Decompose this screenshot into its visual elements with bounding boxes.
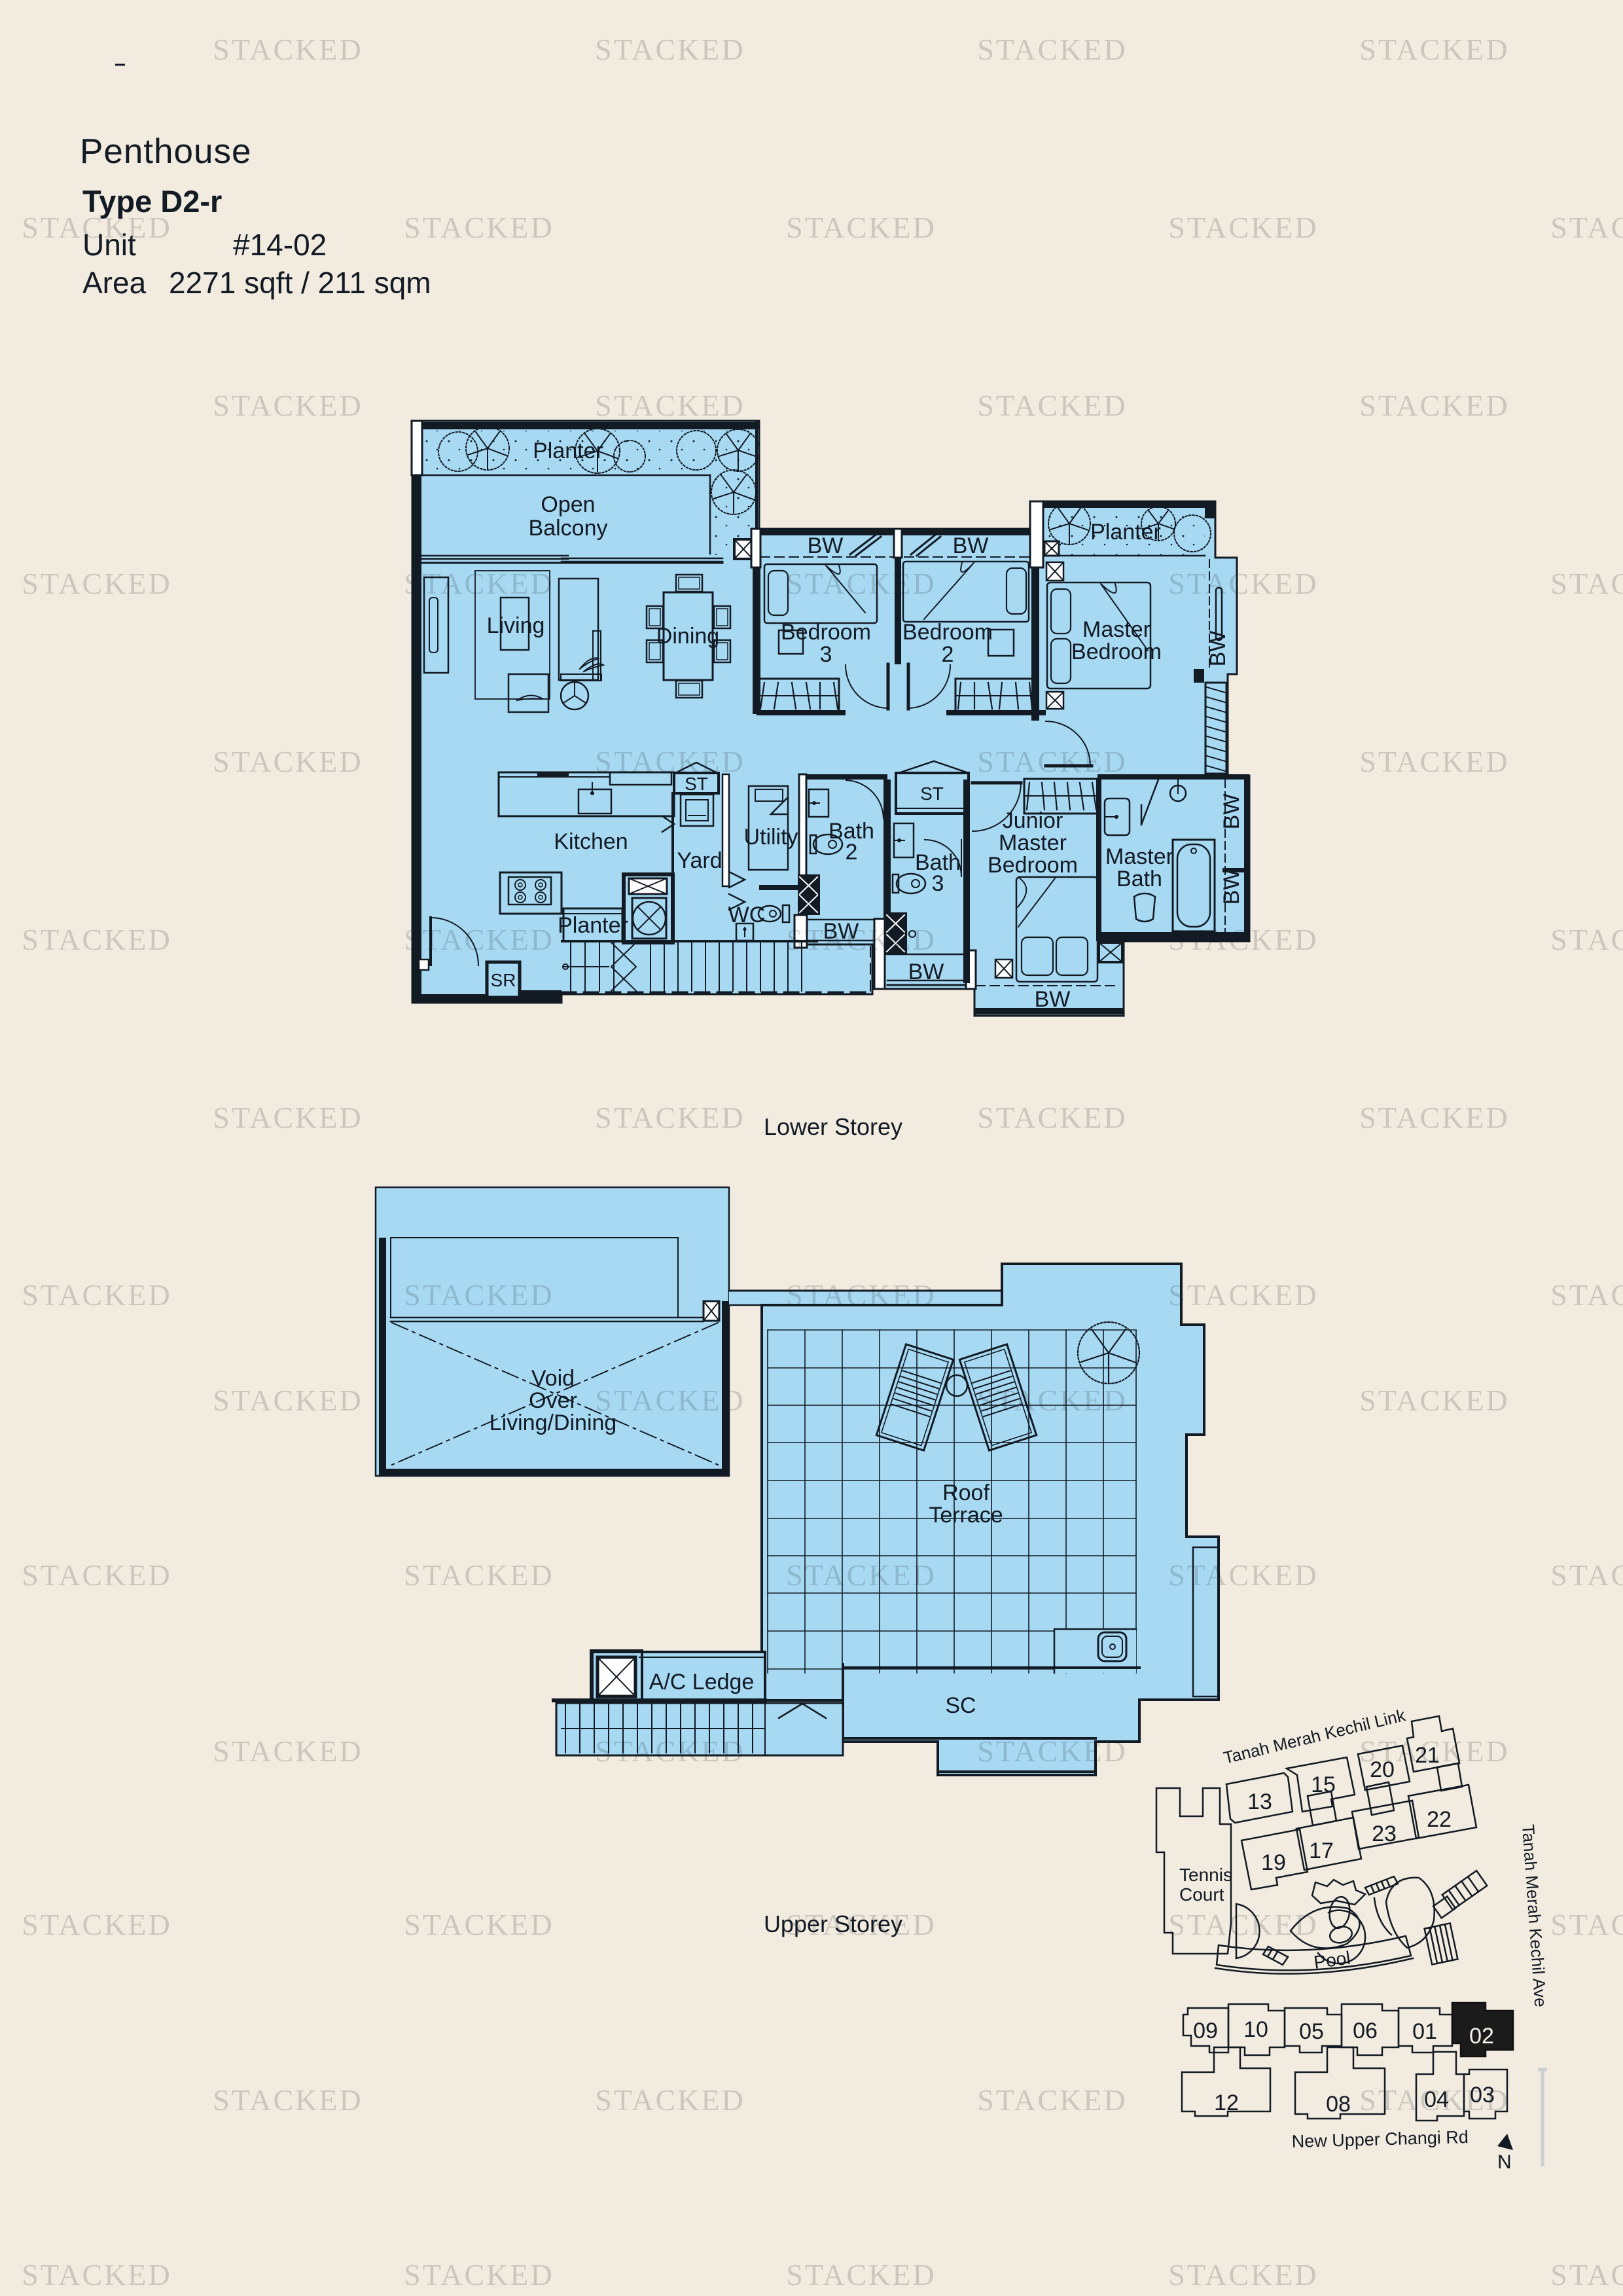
svg-text:Utility: Utility — [743, 825, 798, 850]
svg-text:STACKED: STACKED — [22, 2258, 171, 2291]
svg-text:STACKED: STACKED — [1359, 33, 1509, 66]
svg-text:STACKED: STACKED — [786, 923, 936, 956]
svg-text:Living: Living — [487, 613, 545, 638]
svg-text:STACKED: STACKED — [786, 1278, 936, 1312]
svg-text:SC: SC — [945, 1693, 976, 1718]
svg-text:Open: Open — [541, 492, 595, 517]
svg-text:STACKED: STACKED — [595, 1101, 745, 1134]
svg-text:STACKED: STACKED — [1550, 211, 1623, 244]
svg-text:STACKED: STACKED — [1168, 1558, 1318, 1592]
svg-text:Bedroom: Bedroom — [1071, 639, 1162, 664]
svg-text:STACKED: STACKED — [1168, 211, 1318, 244]
svg-text:STACKED: STACKED — [786, 2258, 936, 2291]
svg-text:22: 22 — [1427, 1807, 1452, 1832]
svg-text:STACKED: STACKED — [1550, 923, 1623, 956]
svg-text:15: 15 — [1311, 1772, 1336, 1797]
svg-text:STACKED: STACKED — [22, 567, 171, 600]
svg-text:2271 sqft / 211 sqm: 2271 sqft / 211 sqm — [169, 266, 431, 300]
svg-text:STACKED: STACKED — [977, 1734, 1127, 1768]
svg-text:Penthouse: Penthouse — [80, 132, 251, 171]
svg-text:STACKED: STACKED — [786, 211, 936, 244]
svg-text:STACKED: STACKED — [22, 211, 171, 244]
svg-text:STACKED: STACKED — [977, 1101, 1127, 1134]
svg-text:06: 06 — [1353, 2018, 1378, 2043]
svg-text:BW: BW — [808, 533, 844, 558]
svg-text:STACKED: STACKED — [213, 1734, 363, 1768]
svg-text:Lower Storey: Lower Storey — [764, 1113, 902, 1140]
svg-text:STACKED: STACKED — [595, 1384, 745, 1417]
svg-text:01: 01 — [1412, 2019, 1437, 2044]
svg-text:BW: BW — [1219, 869, 1244, 905]
svg-text:Bedroom: Bedroom — [781, 620, 871, 645]
svg-text:STACKED: STACKED — [213, 33, 363, 66]
svg-text:STACKED: STACKED — [977, 1384, 1127, 1417]
svg-text:STACKED: STACKED — [595, 1734, 745, 1768]
svg-text:STACKED: STACKED — [1550, 1278, 1623, 1312]
svg-text:STACKED: STACKED — [595, 33, 745, 66]
svg-text:Bedroom: Bedroom — [988, 853, 1078, 878]
svg-text:Tennis: Tennis — [1179, 1865, 1232, 1885]
svg-text:Master: Master — [1105, 844, 1173, 869]
svg-text:Planter: Planter — [533, 439, 603, 463]
svg-text:Bath: Bath — [1116, 867, 1162, 891]
svg-text:Area: Area — [82, 266, 147, 300]
svg-text:STACKED: STACKED — [1359, 745, 1509, 778]
svg-text:Terrace: Terrace — [929, 1503, 1003, 1528]
svg-text:STACKED: STACKED — [213, 745, 363, 778]
svg-text:13: 13 — [1247, 1789, 1272, 1814]
svg-text:STACKED: STACKED — [1359, 389, 1509, 422]
svg-text:Roof: Roof — [942, 1480, 990, 1505]
svg-text:STACKED: STACKED — [404, 2258, 554, 2291]
svg-text:STACKED: STACKED — [1359, 1734, 1509, 1768]
svg-text:10: 10 — [1243, 2017, 1268, 2042]
svg-text:STACKED: STACKED — [22, 1908, 171, 1941]
svg-text:STACKED: STACKED — [1168, 567, 1318, 600]
svg-text:WC: WC — [728, 903, 766, 927]
svg-text:SR: SR — [491, 970, 516, 990]
svg-text:23: 23 — [1372, 1821, 1397, 1846]
svg-text:STACKED: STACKED — [404, 567, 554, 600]
svg-text:BW: BW — [1219, 794, 1244, 830]
svg-text:Junior: Junior — [1003, 808, 1063, 833]
svg-text:09: 09 — [1193, 2018, 1218, 2043]
svg-text:Master: Master — [999, 831, 1067, 855]
svg-text:STACKED: STACKED — [213, 1101, 363, 1134]
svg-text:STACKED: STACKED — [786, 1558, 936, 1592]
svg-text:17: 17 — [1309, 1839, 1334, 1863]
svg-text:STACKED: STACKED — [595, 745, 745, 778]
svg-text:#14-02: #14-02 — [233, 228, 327, 262]
svg-text:Planter: Planter — [558, 913, 628, 938]
svg-text:STACKED: STACKED — [1550, 1908, 1623, 1941]
svg-text:Balcony: Balcony — [529, 516, 608, 541]
svg-text:STACKED: STACKED — [977, 745, 1127, 778]
svg-text:2: 2 — [942, 642, 954, 667]
svg-text:STACKED: STACKED — [1550, 1558, 1623, 1592]
svg-text:STACKED: STACKED — [1359, 2083, 1509, 2117]
svg-text:BW: BW — [908, 960, 944, 984]
svg-text:STACKED: STACKED — [786, 567, 936, 600]
svg-text:05: 05 — [1299, 2019, 1324, 2044]
svg-text:STACKED: STACKED — [1168, 1908, 1318, 1941]
svg-text:STACKED: STACKED — [404, 1558, 554, 1592]
svg-text:STACKED: STACKED — [977, 389, 1127, 422]
svg-text:Court: Court — [1179, 1884, 1224, 1905]
svg-text:Void: Void — [531, 1366, 575, 1391]
svg-text:A/C Ledge: A/C Ledge — [649, 1670, 755, 1695]
svg-text:STACKED: STACKED — [404, 923, 554, 956]
svg-text:STACKED: STACKED — [595, 2083, 745, 2117]
svg-text:STACKED: STACKED — [1168, 2258, 1318, 2291]
svg-text:STACKED: STACKED — [1168, 923, 1318, 956]
svg-text:12: 12 — [1214, 2090, 1239, 2115]
svg-text:BW: BW — [1205, 631, 1230, 667]
svg-text:Yard: Yard — [677, 848, 722, 873]
svg-text:BW: BW — [1035, 987, 1071, 1012]
svg-text:BW: BW — [953, 533, 989, 558]
svg-text:STACKED: STACKED — [213, 2083, 363, 2117]
svg-text:STACKED: STACKED — [595, 389, 745, 422]
svg-text:02: 02 — [1469, 2024, 1494, 2049]
svg-text:STACKED: STACKED — [1359, 1384, 1509, 1417]
svg-text:ST: ST — [920, 783, 944, 804]
svg-text:N: N — [1497, 2151, 1512, 2173]
svg-text:STACKED: STACKED — [1550, 567, 1623, 600]
svg-text:STACKED: STACKED — [977, 2083, 1127, 2117]
svg-text:19: 19 — [1261, 1850, 1286, 1875]
svg-text:08: 08 — [1326, 2092, 1351, 2117]
svg-text:STACKED: STACKED — [977, 33, 1127, 66]
svg-text:STACKED: STACKED — [1550, 2258, 1623, 2291]
svg-text:STACKED: STACKED — [22, 1278, 171, 1312]
svg-text:Planter: Planter — [1090, 520, 1161, 545]
svg-text:STACKED: STACKED — [404, 211, 554, 244]
svg-text:STACKED: STACKED — [1168, 1278, 1318, 1312]
svg-text:STACKED: STACKED — [213, 389, 363, 422]
svg-text:3: 3 — [820, 642, 832, 667]
svg-text:STACKED: STACKED — [22, 923, 171, 956]
svg-text:Over: Over — [529, 1388, 577, 1413]
svg-text:2: 2 — [846, 840, 858, 865]
svg-text:Kitchen: Kitchen — [554, 829, 628, 854]
svg-text:Bedroom: Bedroom — [902, 620, 993, 645]
svg-text:Master: Master — [1082, 617, 1150, 642]
svg-text:STACKED: STACKED — [22, 1558, 171, 1592]
svg-text:3: 3 — [932, 871, 944, 896]
svg-text:Dining: Dining — [656, 624, 719, 649]
svg-text:STACKED: STACKED — [213, 1384, 363, 1417]
svg-text:STACKED: STACKED — [786, 1908, 936, 1941]
svg-text:STACKED: STACKED — [404, 1278, 554, 1312]
svg-text:STACKED: STACKED — [1359, 1101, 1509, 1134]
svg-text:STACKED: STACKED — [404, 1908, 554, 1941]
